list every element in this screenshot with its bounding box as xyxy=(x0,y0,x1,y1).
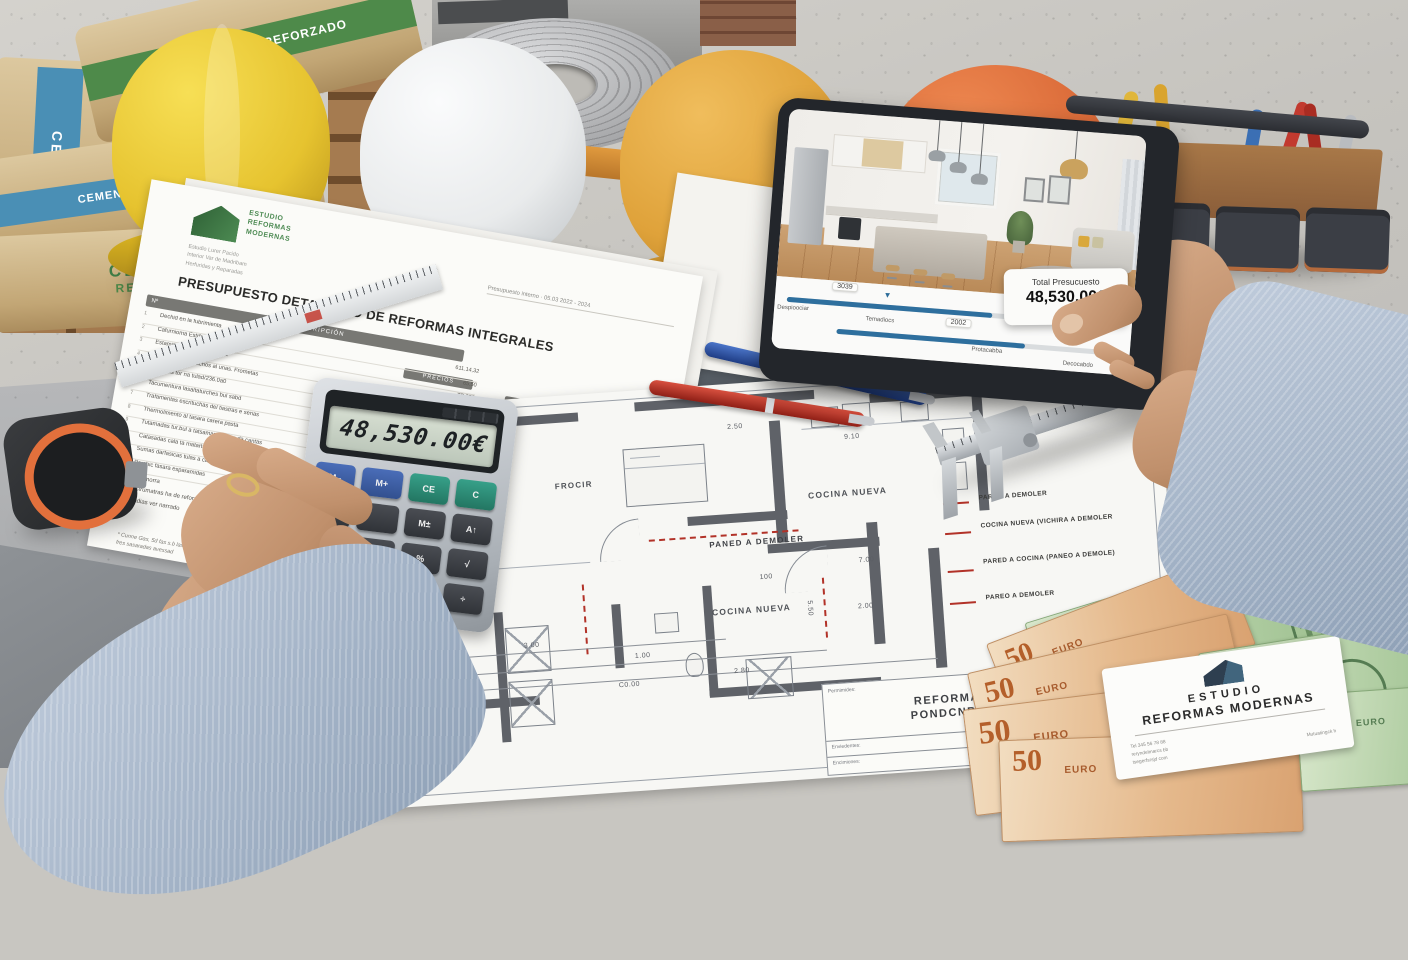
row-num: 1 xyxy=(144,310,161,319)
toolbox-pocket xyxy=(1304,207,1390,274)
caliper-upper-jaw xyxy=(922,422,948,448)
key-grand-total[interactable]: A↑ xyxy=(450,513,493,546)
pendant-lamp-shade xyxy=(928,150,946,162)
caliper-moving-jaw xyxy=(990,446,1004,502)
slider2-fill xyxy=(836,329,1025,349)
tape-measure xyxy=(0,403,151,541)
dimension-label: 1.00 xyxy=(635,652,651,660)
banknote-denomination: 50 xyxy=(1011,744,1042,779)
shower-box xyxy=(745,656,794,699)
calculator-display-bezel: 48,530.00€ xyxy=(319,389,505,474)
dimension-label: 7.00 xyxy=(859,556,875,564)
slider1-thumb-icon[interactable]: ▼ xyxy=(883,290,892,300)
toolbox-pocket xyxy=(1214,206,1300,273)
thumb-nail xyxy=(1057,310,1086,337)
kitchen-oven xyxy=(838,217,862,241)
key-memory-toggle[interactable]: M± xyxy=(403,507,446,540)
company-brand-block: ESTUDIO REFORMAS MODERNAS xyxy=(245,209,368,258)
bed xyxy=(622,444,708,508)
slider2-value-chip: 2002 xyxy=(945,317,971,328)
ruler-red-mark xyxy=(304,309,322,323)
total-price-title: Total Presucuesto xyxy=(1004,276,1128,287)
card-right-note: Mutuatingck h xyxy=(1306,729,1336,738)
title-block-label: Enviedentes: xyxy=(832,743,861,751)
wall-frame xyxy=(1047,175,1071,205)
dimension-label: 5.50 xyxy=(806,600,814,616)
tape-measure-tab xyxy=(124,461,148,488)
dimension-label: 3.00 xyxy=(524,642,540,650)
pen-red-band xyxy=(765,398,775,414)
slider2-label-end: Protacabba xyxy=(971,347,1002,355)
bed-line xyxy=(625,463,705,470)
slider1-label-left: Despioociar xyxy=(777,305,809,312)
kitchen-wood-cabinet xyxy=(862,138,904,169)
key-clear[interactable]: C xyxy=(454,478,497,511)
island-stool xyxy=(941,273,955,280)
sink-box xyxy=(654,612,679,634)
pendant-lamp-shade xyxy=(949,161,967,173)
dimension-label: C0.00 xyxy=(619,681,641,689)
title-block-label: Encimiones: xyxy=(833,759,861,767)
caliper-fixed-jaw xyxy=(942,457,958,520)
dimension-label: 2.00 xyxy=(858,602,874,610)
company-logo xyxy=(190,201,241,242)
title-block-label: Permimides: xyxy=(828,687,856,695)
sofa-pillow xyxy=(1092,237,1104,249)
card-contact-block: Tel 345 56 78 88 reryndelmarcs bb tseger… xyxy=(1130,729,1242,768)
dimension-label: 2.50 xyxy=(727,423,743,431)
document-meta: Presupuesto interno · 05.03 2022 - 2024 xyxy=(487,285,676,327)
col-num-header: Nº xyxy=(151,298,174,308)
row-amount: 611.14,32 xyxy=(423,359,479,375)
key-clear-entry[interactable]: CE xyxy=(407,473,450,506)
dimension-label: 2 80 xyxy=(734,667,750,675)
sofa-pillow xyxy=(1078,236,1090,248)
banknote-euro-word: EURO xyxy=(1035,680,1070,698)
banknote-euro-word: EURO xyxy=(1064,764,1097,776)
island-stool xyxy=(885,265,899,272)
dimension-label: 100 xyxy=(759,573,773,581)
plant-pot xyxy=(1012,240,1025,253)
slider1-fill xyxy=(787,297,993,318)
banknote-euro-word: EURO xyxy=(1356,716,1387,728)
dimension-label: 9.10 xyxy=(844,433,860,441)
slider1-label-mid: Temadiocs xyxy=(865,316,894,324)
card-house-logo xyxy=(1202,658,1245,687)
wall-frame xyxy=(1023,177,1045,202)
rattan-pendant xyxy=(1075,131,1078,161)
key-sqrt[interactable]: √ xyxy=(445,548,488,581)
pendant-lamp-shade xyxy=(971,173,989,185)
slider2-label-right: Decocabdo xyxy=(1062,361,1093,369)
bed-pillow-line xyxy=(630,456,660,459)
kitchen-island xyxy=(872,226,987,281)
island-stool xyxy=(913,269,927,276)
sofa xyxy=(1070,227,1135,274)
calculator-display-value: 48,530.00€ xyxy=(337,415,490,459)
slider1-value-chip: 3039 xyxy=(832,281,858,292)
